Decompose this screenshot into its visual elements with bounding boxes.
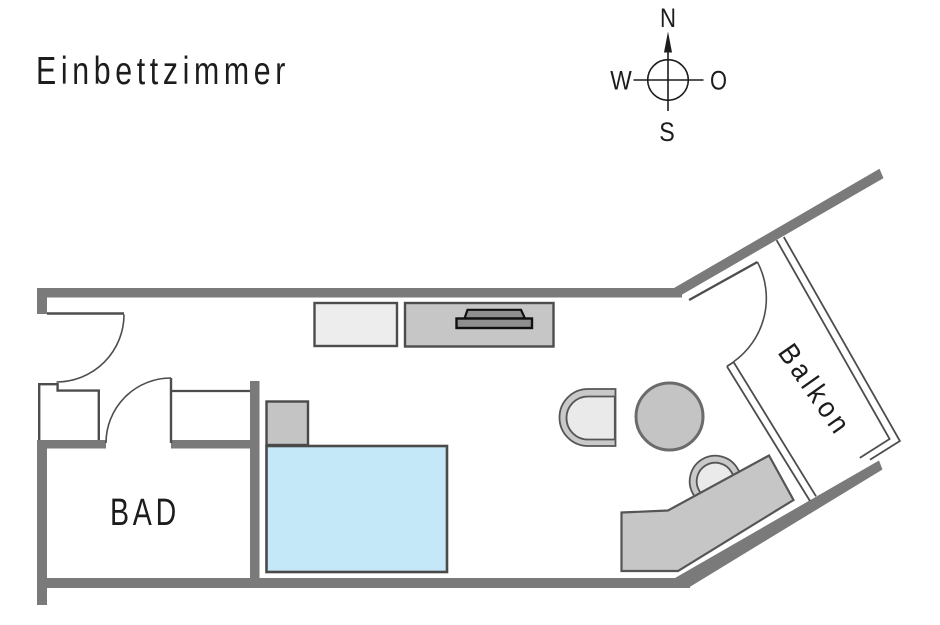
svg-text:O: O <box>710 66 727 96</box>
svg-text:Einbettzimmer: Einbettzimmer <box>36 50 290 93</box>
svg-text:W: W <box>610 66 632 96</box>
svg-text:Balkon: Balkon <box>771 338 857 442</box>
svg-text:N: N <box>660 3 676 33</box>
svg-text:BAD: BAD <box>110 492 180 534</box>
svg-text:S: S <box>659 117 675 147</box>
